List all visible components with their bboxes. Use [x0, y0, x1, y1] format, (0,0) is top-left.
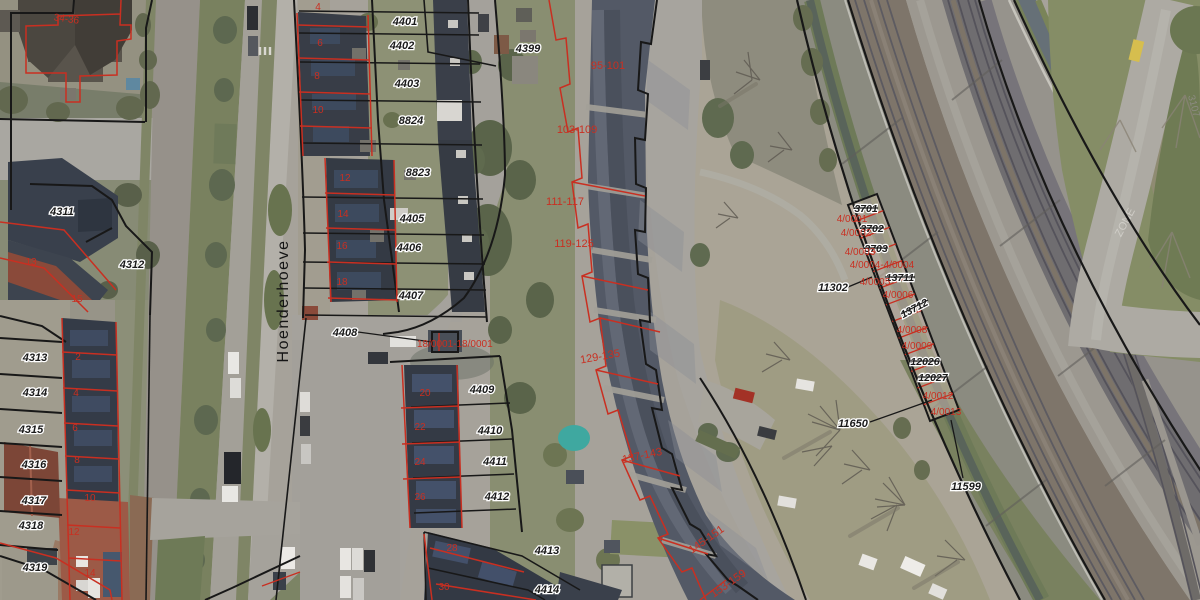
- svg-text:12: 12: [68, 527, 80, 538]
- svg-text:14: 14: [84, 568, 96, 579]
- svg-text:4/0002: 4/0002: [841, 228, 872, 239]
- svg-text:4313: 4313: [22, 352, 47, 364]
- svg-text:4/0012: 4/0012: [923, 391, 954, 402]
- svg-text:20: 20: [419, 388, 431, 399]
- svg-text:4318: 4318: [18, 520, 44, 532]
- svg-text:4/0001: 4/0001: [837, 214, 868, 225]
- svg-text:10: 10: [312, 105, 324, 116]
- svg-text:6: 6: [72, 423, 78, 434]
- svg-text:4: 4: [73, 388, 79, 399]
- svg-text:24: 24: [414, 457, 426, 468]
- svg-text:4: 4: [315, 2, 321, 13]
- svg-text:4/0008: 4/0008: [897, 325, 928, 336]
- svg-text:103-109: 103-109: [557, 124, 597, 136]
- svg-text:4401: 4401: [392, 16, 417, 28]
- svg-text:4311: 4311: [49, 206, 74, 218]
- svg-text:13: 13: [25, 257, 37, 268]
- svg-text:15: 15: [71, 294, 83, 305]
- svg-text:14: 14: [337, 209, 349, 220]
- svg-text:4/0009: 4/0009: [902, 341, 933, 352]
- svg-text:16: 16: [336, 241, 348, 252]
- svg-text:4/0013: 4/0013: [931, 407, 962, 418]
- svg-text:4408: 4408: [332, 327, 358, 339]
- svg-text:30: 30: [438, 582, 450, 593]
- svg-text:4405: 4405: [399, 213, 425, 225]
- svg-text:8: 8: [74, 455, 80, 466]
- svg-text:Hoenderhoeve: Hoenderhoeve: [275, 240, 292, 363]
- svg-text:8: 8: [314, 71, 320, 82]
- svg-text:4406: 4406: [396, 242, 422, 254]
- svg-text:4317: 4317: [21, 495, 47, 507]
- svg-text:4/0004-4/0004: 4/0004-4/0004: [850, 260, 915, 271]
- svg-text:4/0006: 4/0006: [883, 290, 914, 301]
- svg-text:8824: 8824: [399, 115, 423, 127]
- svg-text:26: 26: [414, 492, 426, 503]
- svg-text:11650: 11650: [838, 418, 869, 430]
- svg-text:4316: 4316: [21, 459, 47, 471]
- svg-text:12027: 12027: [918, 372, 948, 384]
- svg-text:4410: 4410: [477, 425, 503, 437]
- svg-text:12: 12: [339, 173, 351, 184]
- svg-text:18: 18: [336, 277, 348, 288]
- svg-text:111-117: 111-117: [546, 196, 584, 208]
- svg-text:95-101: 95-101: [591, 60, 625, 72]
- svg-text:22: 22: [414, 422, 426, 433]
- svg-text:28: 28: [446, 543, 458, 554]
- svg-text:4414: 4414: [534, 584, 559, 596]
- svg-text:2: 2: [75, 352, 81, 363]
- svg-text:4312: 4312: [119, 259, 144, 271]
- svg-text:4412: 4412: [484, 491, 509, 503]
- svg-text:4319: 4319: [22, 562, 48, 574]
- svg-text:4407: 4407: [398, 290, 424, 302]
- svg-text:4413: 4413: [534, 545, 559, 557]
- svg-text:12026: 12026: [910, 356, 939, 368]
- svg-text:11599: 11599: [951, 481, 982, 493]
- svg-text:119-125: 119-125: [554, 238, 594, 250]
- svg-text:4315: 4315: [18, 424, 44, 436]
- svg-text:4409: 4409: [469, 384, 495, 396]
- svg-text:4403: 4403: [394, 78, 419, 90]
- svg-text:4399: 4399: [515, 43, 541, 55]
- svg-text:10: 10: [84, 493, 96, 504]
- svg-text:4402: 4402: [389, 40, 414, 52]
- svg-text:8823: 8823: [406, 167, 430, 179]
- svg-text:4/0005: 4/0005: [860, 277, 891, 288]
- svg-text:4/0003: 4/0003: [845, 247, 876, 258]
- svg-text:4411: 4411: [482, 456, 507, 468]
- svg-text:11302: 11302: [818, 282, 848, 294]
- svg-text:4314: 4314: [22, 387, 47, 399]
- svg-text:6: 6: [317, 38, 323, 49]
- svg-text:18/0001-18/0001: 18/0001-18/0001: [417, 339, 493, 350]
